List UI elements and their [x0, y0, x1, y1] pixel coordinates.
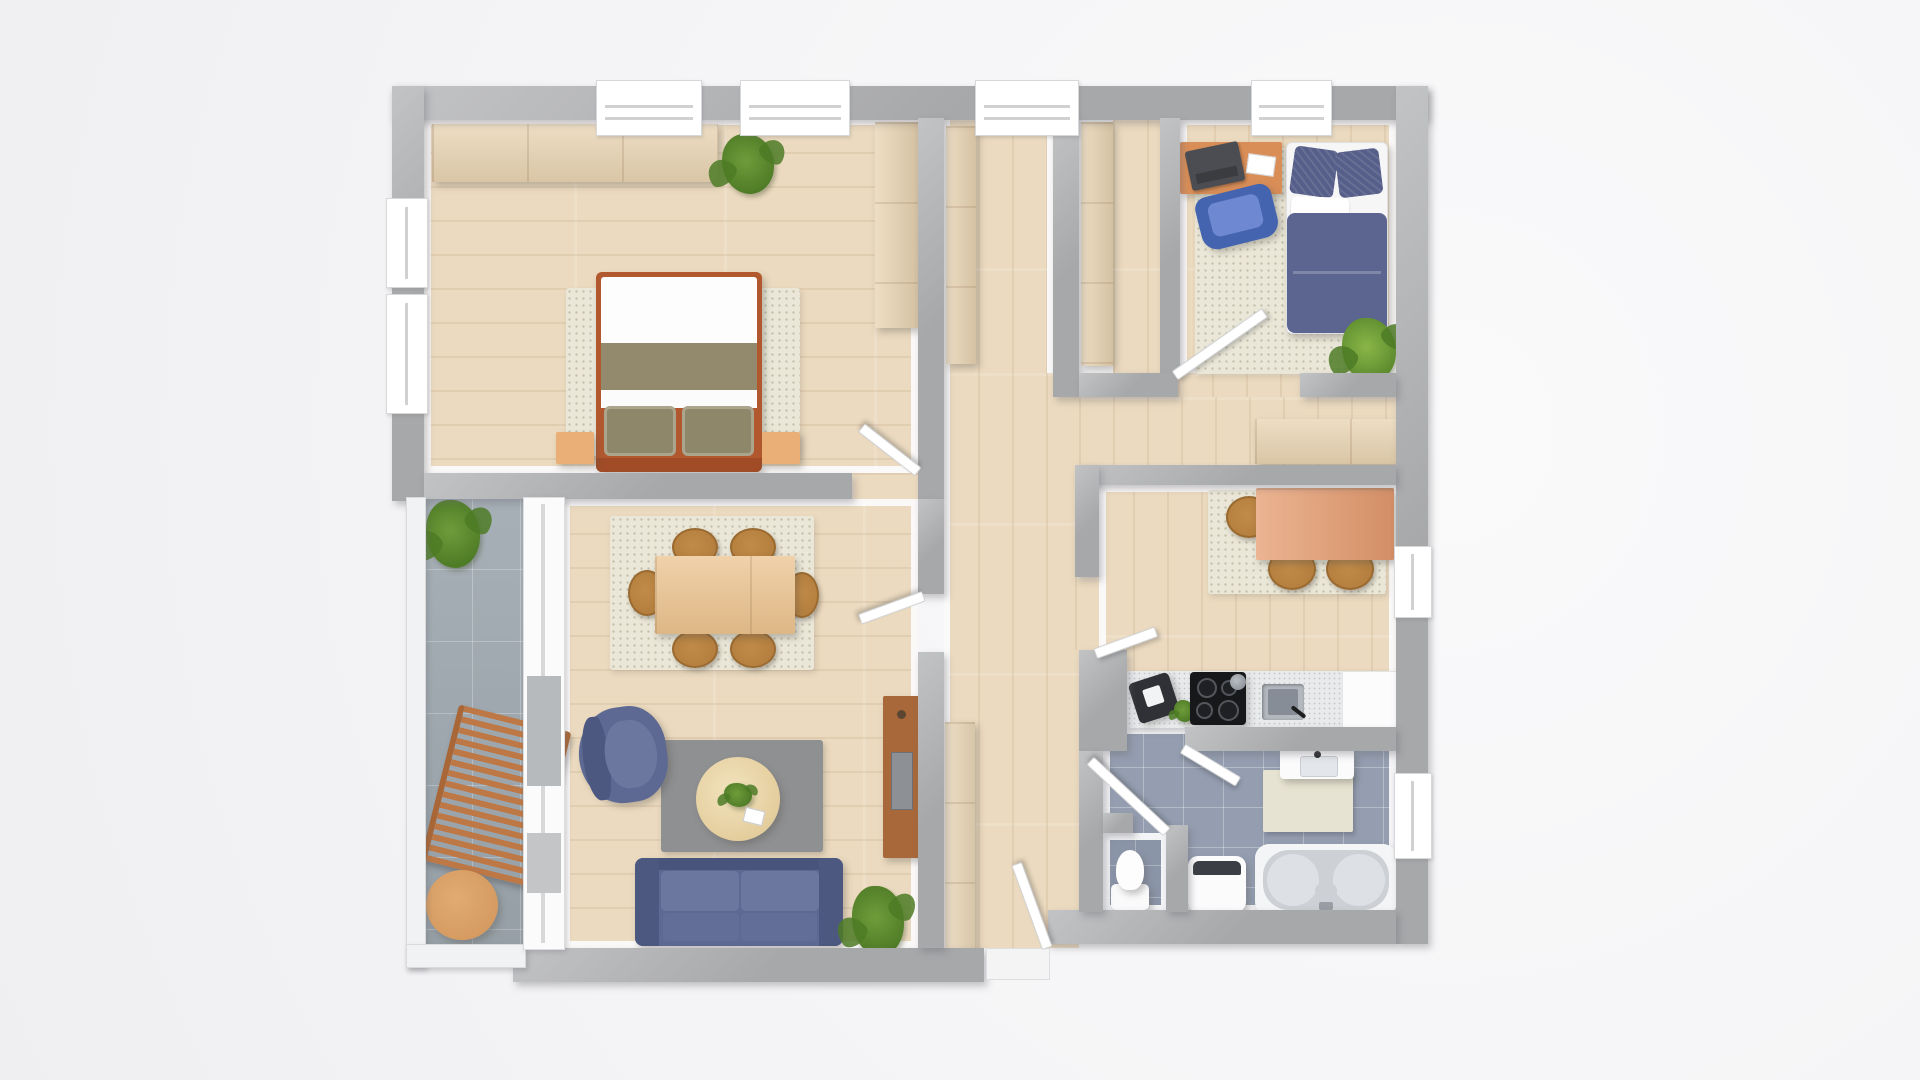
burner — [1218, 700, 1239, 721]
office-chair-seat — [1206, 193, 1265, 239]
duvet-seam — [1293, 271, 1381, 274]
kettle — [1230, 674, 1246, 690]
duvet — [601, 277, 757, 343]
wall-bottom-west — [513, 948, 984, 982]
washbasin — [1280, 751, 1354, 779]
sideboard — [1255, 419, 1396, 464]
tall-wardrobe — [875, 122, 919, 328]
toilet-bowl — [1116, 850, 1144, 890]
wall-bedroom-kids-south-a — [1079, 373, 1178, 397]
balcony-side-table — [426, 870, 498, 940]
wall-bath-north — [1185, 727, 1396, 751]
wall-bedroom-kids-south-b — [1300, 373, 1396, 397]
pillow — [604, 406, 676, 456]
window — [386, 198, 428, 288]
basin-faucet — [1314, 751, 1321, 758]
tv-board — [883, 696, 921, 858]
coffee-machine-top — [1142, 685, 1165, 708]
window — [596, 80, 702, 136]
sofa-seat-cushion — [741, 913, 817, 941]
balcony-window-wall — [523, 497, 565, 950]
sofa-back-cushion — [661, 871, 739, 911]
wall-wc-east — [1166, 825, 1188, 912]
laptop — [1184, 141, 1245, 191]
tub-faucet — [1319, 902, 1333, 910]
double-bed — [596, 272, 762, 472]
hall-wardrobe — [946, 126, 976, 364]
window — [975, 80, 1079, 136]
hall-shelf — [945, 722, 975, 956]
washing-machine — [1188, 856, 1246, 912]
wall-closet-west — [1053, 118, 1079, 397]
balcony-railing-west — [406, 497, 426, 968]
wall-kitchen-west-chunk — [1079, 650, 1127, 751]
window — [1394, 546, 1432, 618]
duvet — [1287, 213, 1387, 333]
laptop-keyboard — [1195, 166, 1238, 185]
floor-plan-canvas — [0, 0, 1920, 1080]
sliding-door-frame — [527, 676, 561, 786]
wall-bedroom-main-south — [424, 473, 852, 499]
washer-panel — [1193, 861, 1241, 875]
closet-niche-floor — [1113, 118, 1160, 373]
bedroom-main-door-threshold — [852, 473, 918, 499]
wall-living-east-a — [918, 499, 944, 594]
sofa-armrest — [635, 858, 659, 946]
wall-living-east-b — [918, 652, 944, 948]
window — [386, 294, 428, 414]
tub-lobe — [1267, 854, 1319, 906]
wall-bottom-east — [1048, 910, 1396, 944]
burner — [1196, 702, 1213, 719]
sofa — [635, 858, 843, 946]
kitchen-worktop-end — [1342, 671, 1396, 728]
window-sill-block — [527, 833, 561, 893]
kitchen-door-threshold — [1075, 577, 1099, 650]
bath-mat — [1263, 770, 1353, 832]
basin — [1300, 756, 1338, 777]
window — [740, 80, 850, 136]
window — [1394, 773, 1432, 859]
magazine — [742, 807, 765, 826]
table-plant — [724, 783, 752, 807]
entrance-threshold — [986, 948, 1050, 980]
wall-closet-east — [1160, 118, 1180, 373]
dining-chair — [672, 630, 718, 668]
pillow — [682, 406, 754, 456]
tv-screen — [891, 752, 913, 810]
wall-kitchen-north — [1079, 465, 1396, 485]
balcony-railing-south — [406, 944, 526, 968]
bathtub — [1255, 844, 1397, 916]
wall-wc-north-stub — [1103, 813, 1133, 833]
tub-lobe — [1333, 854, 1385, 906]
sofa-seat-cushion — [663, 913, 739, 941]
pillow — [1334, 147, 1383, 198]
sofa-back — [659, 858, 819, 870]
headboard — [596, 458, 762, 472]
closet-wardrobe — [1081, 122, 1113, 366]
window — [1251, 80, 1332, 136]
paper — [1246, 153, 1277, 177]
nightstand — [762, 432, 800, 464]
kitchen-sink — [1262, 684, 1304, 720]
blanket-band — [601, 343, 757, 390]
sofa-back-cushion — [741, 871, 819, 911]
toilet — [1109, 850, 1151, 912]
nightstand — [556, 432, 594, 464]
wall-kitchen-west — [1075, 465, 1099, 577]
bedroom-kids-threshold — [1178, 373, 1300, 397]
dining-table — [655, 556, 795, 634]
stove — [1190, 672, 1246, 725]
single-bed — [1286, 142, 1388, 334]
burner — [1197, 678, 1217, 698]
coffee-table — [696, 757, 780, 841]
kitchen-table — [1256, 488, 1394, 560]
tub-interior — [1263, 850, 1389, 910]
wall-hall-west-upper — [918, 118, 944, 499]
speaker-knob — [897, 710, 906, 719]
pillow — [1289, 145, 1339, 199]
dining-chair — [730, 630, 776, 668]
